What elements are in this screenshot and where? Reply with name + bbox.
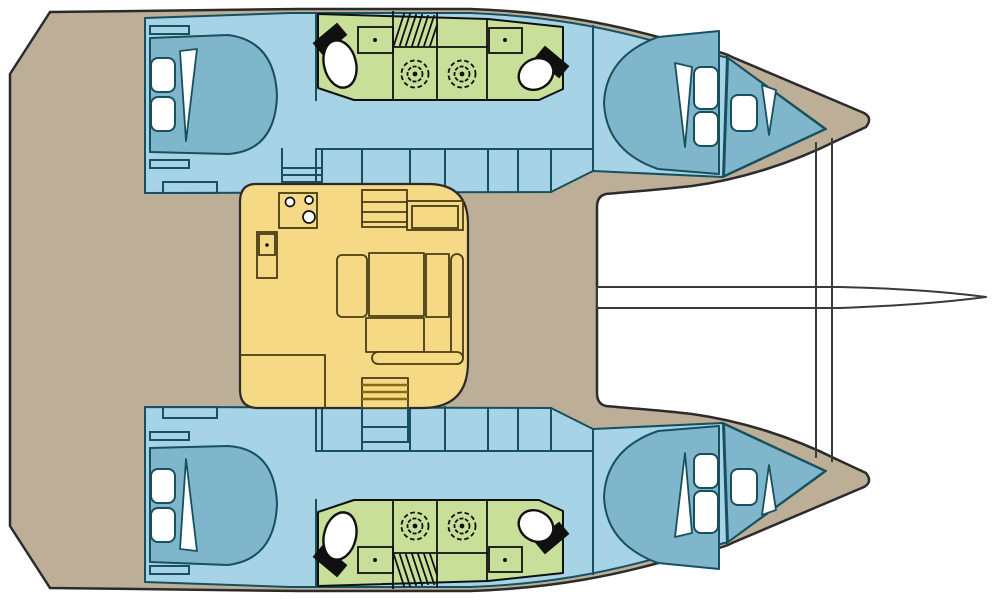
salon: [240, 184, 468, 408]
settee-chaise: [337, 255, 367, 317]
salon-table: [369, 253, 424, 316]
stove-burner: [303, 211, 315, 223]
bowsprit: [597, 287, 986, 308]
sink-drain: [265, 243, 269, 247]
stove-burner: [305, 196, 313, 204]
shower-drain: [460, 72, 465, 77]
bowsprit-spar: [597, 287, 986, 308]
settee-backrest-aft: [372, 352, 463, 364]
floor-plan-stage: Catamaran interior layout floor plan (4 …: [0, 0, 994, 600]
double-berth: [150, 35, 277, 154]
settee-corner: [426, 254, 449, 317]
salon-aft-steps: [362, 378, 408, 408]
hull-bottom: [145, 407, 826, 588]
pillow: [151, 97, 175, 131]
basin-drain: [503, 38, 507, 42]
pillow: [151, 58, 175, 92]
wet-room: [313, 12, 570, 100]
pillow: [731, 95, 757, 131]
stove-burner: [286, 198, 295, 207]
pillow: [694, 67, 718, 109]
settee-backrest-right: [451, 254, 463, 364]
catamaran-floor-plan: Catamaran interior layout floor plan (4 …: [0, 0, 994, 600]
settee-seat: [366, 318, 424, 352]
basin-drain: [373, 38, 377, 42]
shower-drain: [413, 72, 418, 77]
hull-top: [145, 12, 826, 193]
pillow: [694, 112, 718, 146]
